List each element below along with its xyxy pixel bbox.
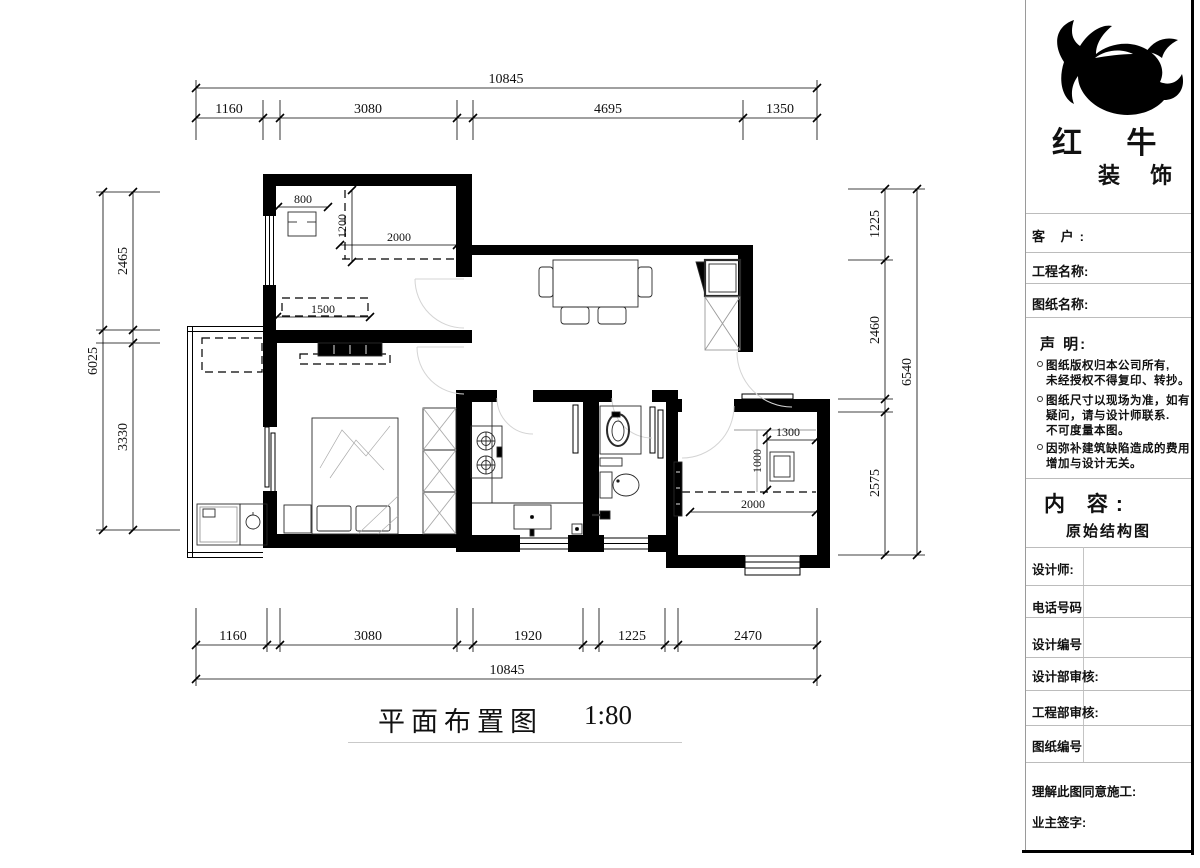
statement-title: 声 明: — [1040, 333, 1087, 354]
hall-cabinet-x — [705, 297, 740, 350]
dim-i2000b: 2000 — [741, 497, 765, 511]
bed — [312, 418, 398, 534]
statement-line: 图纸尺寸以现场为准，如有 — [1046, 392, 1190, 408]
toilet — [600, 472, 639, 498]
statement-line: 不可度量本图。 — [1046, 422, 1130, 438]
field-drawing-name: 图纸名称: — [1032, 294, 1088, 313]
row-drawing-no: 图纸编号 — [1032, 736, 1082, 755]
label-column-divider — [1083, 547, 1084, 762]
content-label: 内 容: — [1044, 488, 1131, 518]
balcony-sink — [240, 504, 267, 545]
dim-bot-5: 2470 — [734, 629, 762, 644]
content-value: 原始结构图 — [1066, 520, 1151, 541]
divider — [1026, 252, 1191, 253]
divider — [1026, 690, 1191, 691]
bedroom2-desk — [734, 430, 816, 492]
divider — [1026, 547, 1191, 548]
bullet-icon — [1037, 396, 1043, 402]
dim-top-total: 10845 — [489, 72, 524, 87]
dim-left-2: 3330 — [116, 423, 131, 451]
row-design-review: 设计部审核: — [1032, 666, 1099, 685]
dim-i2000a: 2000 — [387, 230, 411, 244]
dim-right-total: 6540 — [900, 358, 915, 386]
dim-bot-3: 1920 — [514, 629, 542, 644]
kitchen-sink — [514, 505, 551, 536]
dim-top-4: 1350 — [766, 102, 794, 117]
divider — [1026, 585, 1191, 586]
dim-i800: 800 — [294, 192, 312, 206]
divider — [1026, 617, 1191, 618]
row-designer: 设计师: — [1032, 559, 1074, 578]
divider — [1026, 283, 1191, 284]
row-agree: 理解此图同意施工: — [1032, 781, 1136, 800]
row-phone: 电话号码 — [1032, 597, 1082, 616]
kitchen-counter — [472, 402, 583, 503]
field-project-name: 工程名称: — [1032, 261, 1088, 280]
dim-right-1: 1225 — [868, 210, 883, 238]
statement-line: 增加与设计无关。 — [1046, 455, 1142, 471]
dim-i1300: 1300 — [776, 425, 800, 439]
tv-unit — [318, 343, 382, 356]
kitchen-drain — [572, 524, 582, 534]
dim-bot-2: 3080 — [354, 629, 382, 644]
dining-table — [539, 260, 652, 324]
dim-bot-4: 1225 — [618, 629, 646, 644]
statement-line: 疑问，请与设计师联系. — [1046, 407, 1170, 423]
dimension-lines — [96, 80, 925, 686]
plan-title: 平面布置图 — [378, 700, 543, 739]
divider — [1026, 478, 1191, 479]
bath-vanity — [600, 406, 641, 466]
dim-right-3: 2575 — [868, 469, 883, 497]
washing-machine — [197, 504, 240, 545]
dim-i1200: 1200 — [335, 214, 349, 238]
bedroom2-tv — [674, 462, 682, 516]
dim-top-3: 4695 — [594, 102, 622, 117]
divider — [1026, 725, 1191, 726]
dim-left-1: 2465 — [116, 247, 131, 275]
divider — [1026, 317, 1191, 318]
dimension-ticks — [99, 84, 921, 683]
divider — [1026, 762, 1191, 763]
dim-top-1: 1160 — [215, 102, 242, 117]
row-design-no: 设计编号 — [1032, 634, 1082, 653]
title-underline — [348, 742, 682, 743]
brand-subtitle: 装 饰 — [1098, 158, 1184, 190]
dimension-labels: 10845 1160 3080 4695 1350 1160 3080 1920… — [86, 72, 915, 678]
nightstand — [284, 505, 311, 533]
wardrobe — [423, 408, 456, 534]
statement-line: 因弥补建筑缺陷造成的费用 — [1046, 440, 1190, 456]
field-customer: 客 户: — [1032, 226, 1090, 245]
drawing-sheet: 10845 1160 3080 4695 1350 1160 3080 1920… — [0, 0, 1200, 868]
fridge-cabinet — [696, 260, 740, 296]
divider — [1026, 657, 1191, 658]
dim-i1000: 1000 — [750, 449, 764, 473]
dim-left-total: 6025 — [86, 347, 101, 375]
statement-line: 图纸版权归本公司所有, — [1046, 357, 1170, 373]
dim-right-2: 2460 — [868, 316, 883, 344]
plan-scale: 1:80 — [584, 700, 632, 731]
statement-line: 未经授权不得复印、转抄。 — [1046, 372, 1190, 388]
dim-top-2: 3080 — [354, 102, 382, 117]
gas-stove — [471, 426, 502, 478]
brand-name: 红 牛 — [1052, 118, 1174, 162]
dim-i1500: 1500 — [311, 302, 335, 316]
room-a-cabinet — [288, 212, 316, 236]
row-owner-sign: 业主签字: — [1032, 812, 1086, 831]
bullet-icon — [1037, 361, 1043, 367]
dim-bot-total: 10845 — [490, 663, 525, 678]
dim-bot-1: 1160 — [219, 629, 246, 644]
furniture — [197, 212, 816, 545]
company-logo-bull-icon — [1035, 14, 1195, 119]
sheet-right-border — [1191, 0, 1194, 855]
sheet-bottom-border — [1022, 850, 1194, 853]
divider — [1026, 213, 1191, 214]
bullet-icon — [1037, 444, 1043, 450]
row-eng-review: 工程部审核: — [1032, 702, 1099, 721]
